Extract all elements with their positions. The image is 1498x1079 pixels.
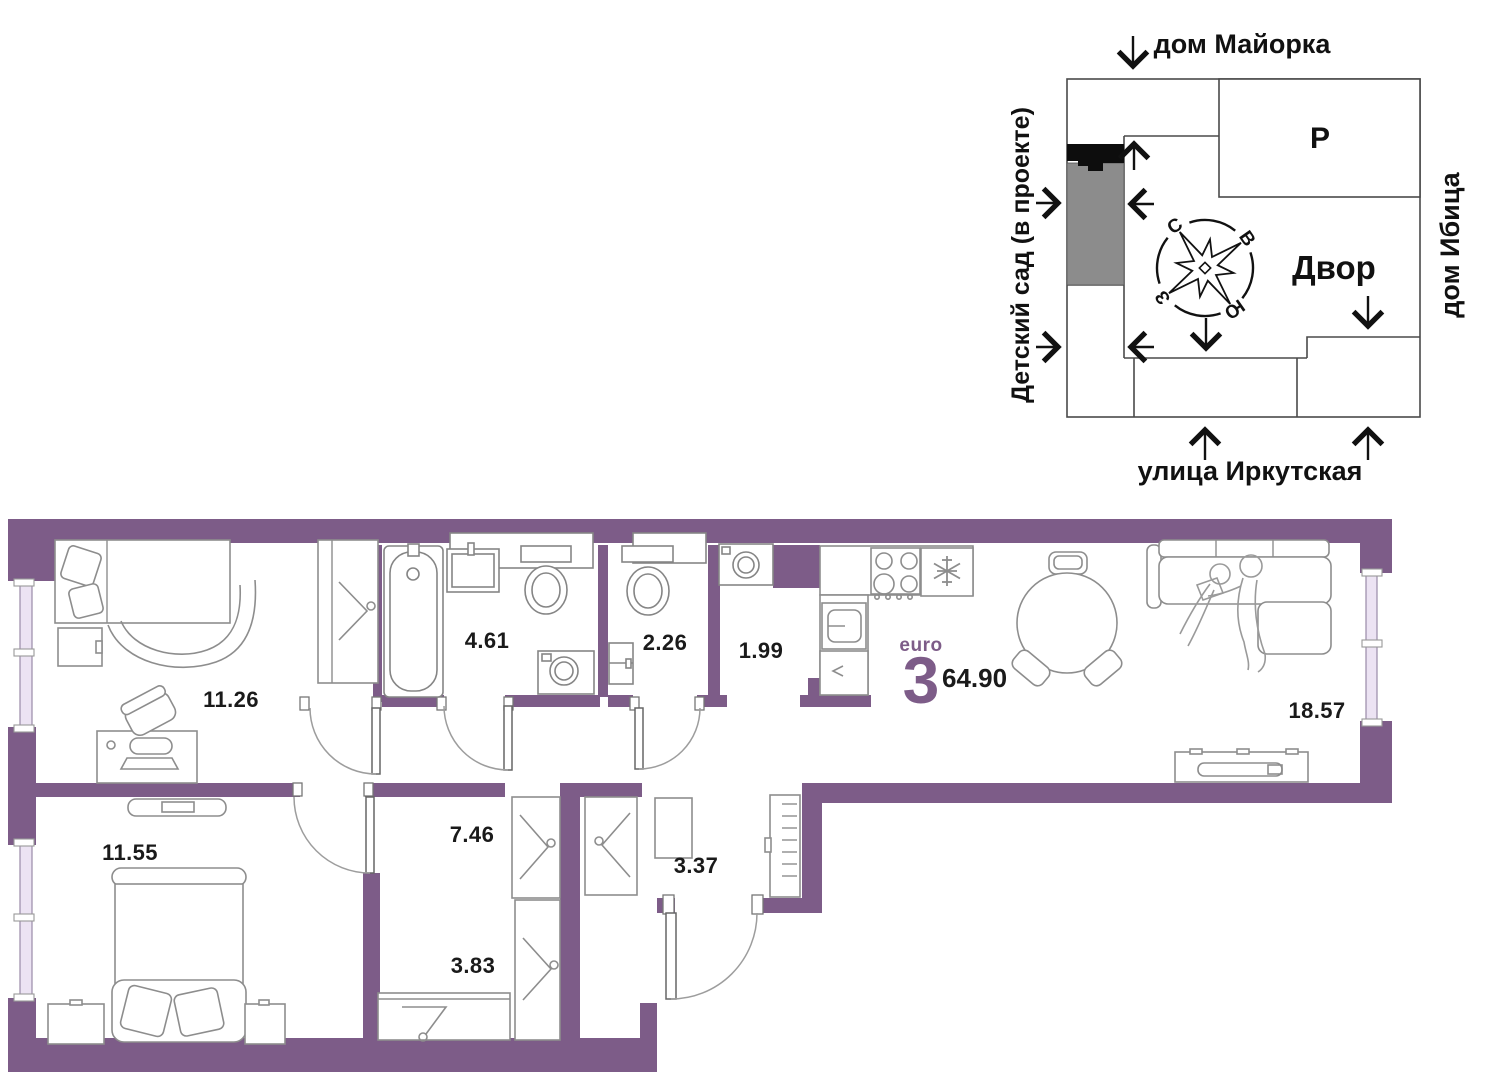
drawer-cabinet [820,651,868,695]
wall [365,783,505,797]
pillow [68,583,104,619]
wall [757,898,820,913]
room-label-bathroom: 4.61 [465,628,509,653]
wall [505,695,600,707]
sofa-seat [1159,557,1331,604]
room-label-laundry: 1.99 [739,638,783,663]
door-leaf [504,706,512,770]
room-label-corridor: 7.46 [450,822,494,847]
wall [598,545,608,697]
wall [802,783,822,913]
door-swing-arc [294,797,370,873]
nightstand [48,1004,104,1044]
room-bathroom [384,533,594,697]
sofa-chaise [1258,602,1331,654]
wardrobe [318,540,378,683]
hall-cabinet [655,798,692,858]
room-living [1147,540,1331,782]
nightstand [245,1004,285,1044]
site-label-top-building: дом Майорка [1154,29,1332,59]
site-label-parking: Р [1310,122,1330,155]
site-label-left-area: Детский сад (в проекте) [1007,107,1035,403]
room-label-wardrobe: 3.83 [451,953,495,978]
faucet [408,544,419,556]
wall [800,695,871,707]
drain [407,568,419,580]
wardrobe [515,900,560,1040]
door-swing-arc [639,708,700,769]
site-label-courtyard: Двор [1292,249,1376,286]
door-leaf [635,708,643,769]
wall [608,695,633,707]
pillow [173,987,225,1037]
sofa-back [1159,540,1329,557]
apartment-location-highlight [1067,163,1124,285]
wall [36,783,300,797]
window [1366,573,1377,723]
room-label-bedroom-2: 11.55 [102,840,158,865]
keyboard [130,738,172,754]
dining-set [1009,552,1124,689]
room-label-living: 18.57 [1288,698,1345,723]
wall [802,783,1392,803]
floor-plan: 11.26 4.61 2.26 1.99 18.57 7.46 3.37 11.… [8,519,1392,1072]
wall [773,545,820,588]
door-leaf [372,708,380,774]
wall [8,1038,657,1072]
wall [560,797,580,1040]
room-laundry [719,544,773,585]
door-swing-arc [444,706,508,770]
toilet-tank [521,546,571,562]
pillow [119,984,172,1037]
room-bedroom-2 [48,799,285,1044]
apartment-total-area: 64.90 [942,663,1007,693]
bed [115,884,243,986]
wall [8,727,36,845]
wall [1360,519,1392,573]
site-plan: С В Ю З дом Майорка Р Двор дом Ибица Дет… [1007,29,1465,486]
hall-wardrobes [378,795,800,1041]
wardrobe [512,797,560,898]
room-bedroom-1 [55,540,378,783]
apartment-room-count: 3 [903,643,940,717]
toilet-tank [622,546,673,562]
room-label-bedroom-1: 11.26 [203,687,259,712]
tv-console [1175,752,1308,782]
wall [560,783,642,797]
wall [640,1003,657,1038]
room-wc [609,533,706,684]
door-swing-arc [310,708,376,774]
wardrobe [378,993,510,1040]
door-leaf [366,797,374,873]
shoe-rack [770,795,800,897]
site-label-right-building: дом Ибица [1435,171,1465,317]
apartment-info: euro 3 64.90 [899,635,1007,717]
entrance-door-leaf [666,913,676,999]
room-label-entry-hall: 3.37 [674,853,718,878]
floor-plan-page: С В Ю З дом Майорка Р Двор дом Ибица Дет… [0,0,1498,1079]
wall [808,678,820,697]
site-label-street: улица Иркутская [1138,456,1363,486]
entrance-door-arc [671,913,757,999]
wardrobe [585,797,637,895]
room-label-wc: 2.26 [643,630,687,655]
